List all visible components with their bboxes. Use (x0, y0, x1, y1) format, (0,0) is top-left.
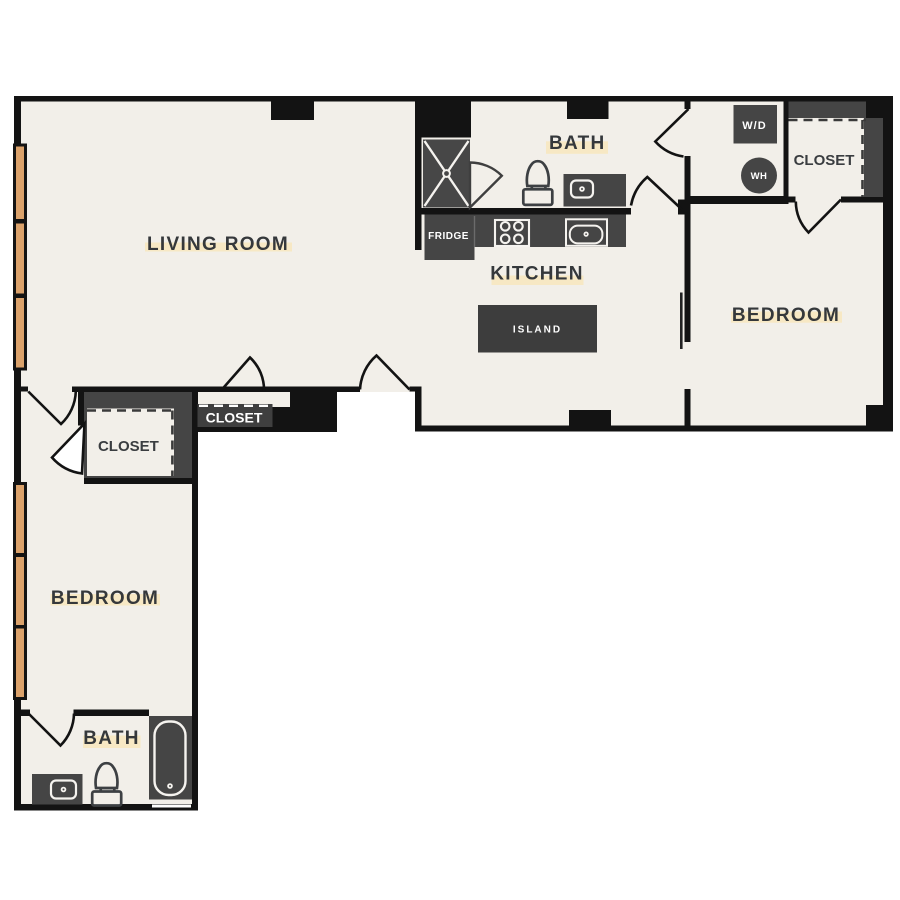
svg-text:LIVING ROOM: LIVING ROOM (147, 234, 289, 255)
svg-text:BATH: BATH (83, 728, 140, 749)
svg-text:BEDROOM: BEDROOM (732, 305, 840, 326)
svg-text:WH: WH (751, 171, 768, 182)
svg-text:CLOSET: CLOSET (98, 438, 159, 455)
svg-text:CLOSET: CLOSET (206, 410, 263, 426)
svg-text:BEDROOM: BEDROOM (51, 588, 159, 609)
svg-text:W/D: W/D (742, 120, 766, 132)
svg-text:KITCHEN: KITCHEN (490, 264, 584, 285)
svg-text:BATH: BATH (549, 133, 606, 154)
svg-text:ISLAND: ISLAND (513, 325, 562, 336)
svg-text:FRIDGE: FRIDGE (428, 231, 469, 242)
svg-text:CLOSET: CLOSET (794, 152, 855, 169)
